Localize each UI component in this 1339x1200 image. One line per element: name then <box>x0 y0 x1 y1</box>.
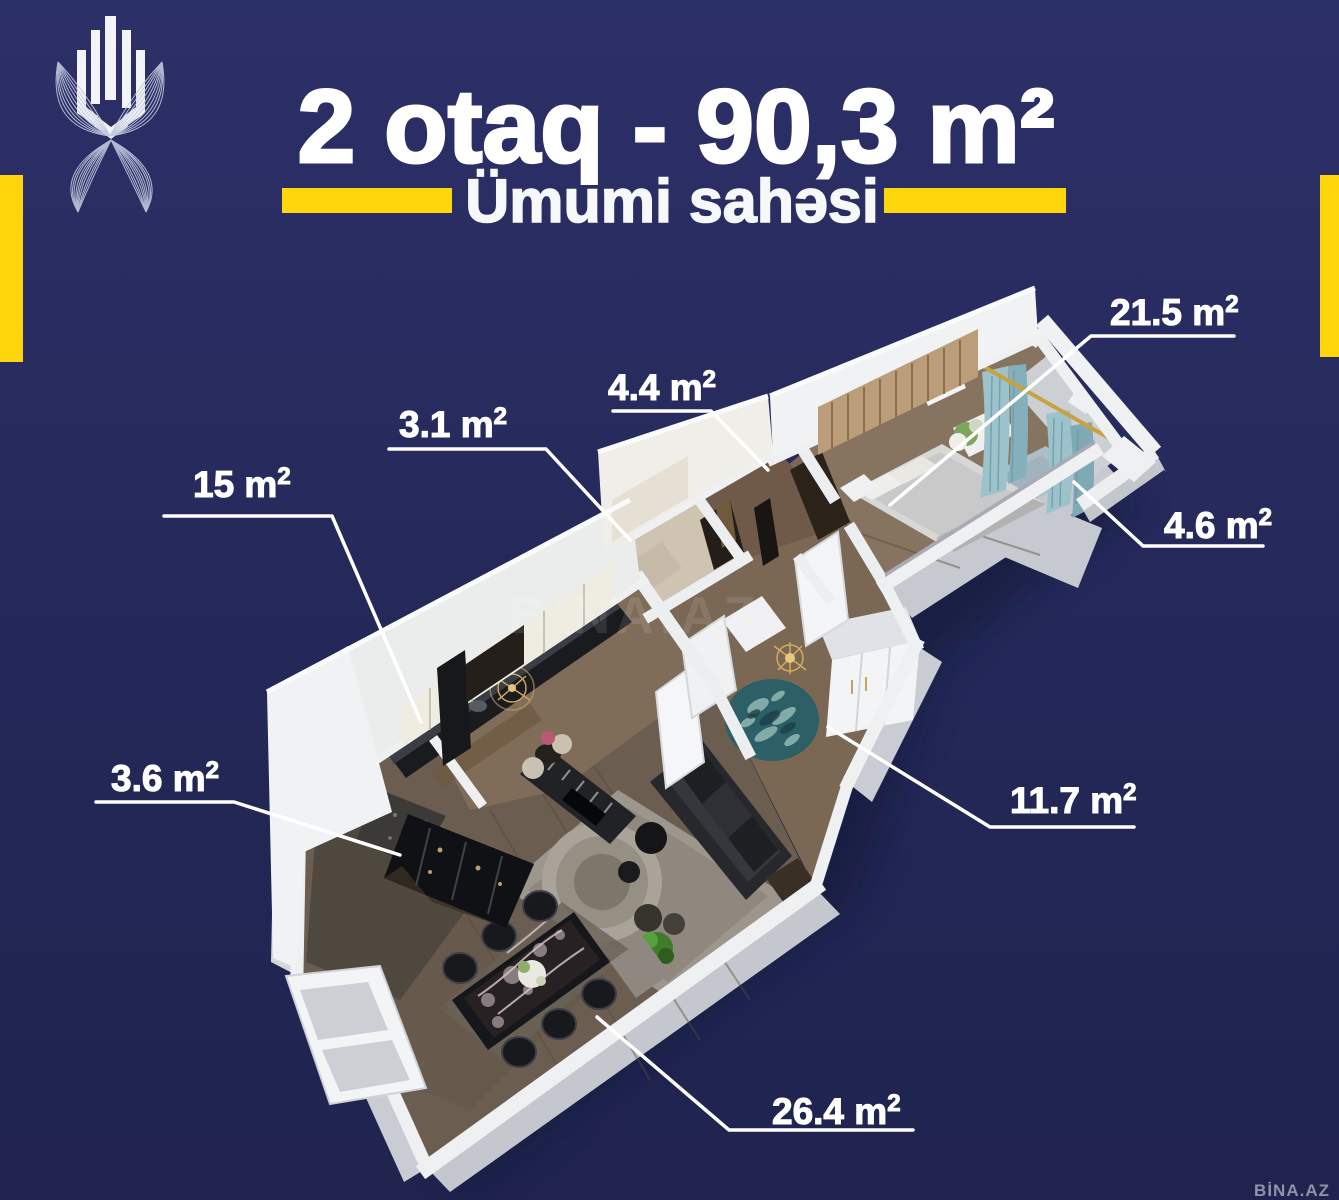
svg-text:3.6 m2: 3.6 m2 <box>111 757 219 799</box>
svg-text:11.7 m2: 11.7 m2 <box>1010 779 1137 821</box>
svg-text:4.4 m2: 4.4 m2 <box>608 366 716 408</box>
svg-text:3.1 m2: 3.1 m2 <box>399 403 507 445</box>
svg-text:4.6 m2: 4.6 m2 <box>1164 504 1272 546</box>
svg-text:21.5 m2: 21.5 m2 <box>1110 291 1239 333</box>
svg-text:Ümumi sahəsi: Ümumi sahəsi <box>465 167 879 235</box>
svg-text:BINA.AZ: BINA.AZ <box>509 587 762 645</box>
svg-text:BİNA.AZ: BİNA.AZ <box>1254 1181 1330 1200</box>
svg-text:15 m2: 15 m2 <box>193 463 291 505</box>
svg-text:26.4 m2: 26.4 m2 <box>772 1090 901 1132</box>
